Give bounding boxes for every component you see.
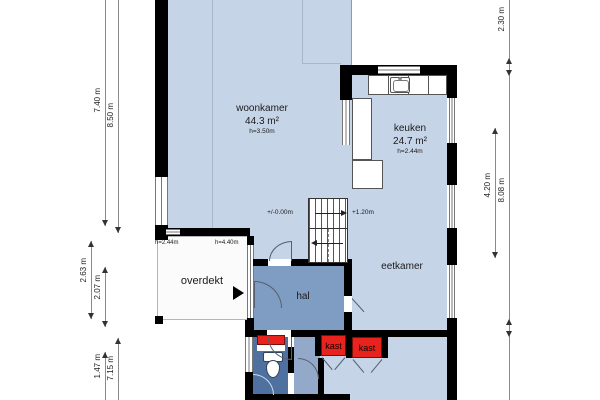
- height-label-left: h=2.44m: [155, 240, 187, 248]
- dimension-arrow: [102, 267, 108, 273]
- kast-right: kast: [352, 337, 382, 358]
- woonkamer-label: woonkamer 44.3 m² h=3.50m: [202, 102, 322, 136]
- wall-eetkamer-bottom: [352, 330, 447, 337]
- window-left: [155, 177, 168, 225]
- dimension-arrow: [88, 313, 94, 319]
- sink-basin: [393, 80, 409, 92]
- wall-right: [447, 65, 457, 98]
- dimension-arrow: [506, 70, 512, 76]
- wall-left: [155, 0, 168, 177]
- dimension-arrow: [506, 58, 512, 64]
- dimension-arrow: [506, 319, 512, 325]
- stair-direction-line: [317, 243, 343, 244]
- dimension-arrow: [492, 128, 498, 134]
- wall-stub: [382, 337, 388, 358]
- dimension-line: [118, 0, 119, 233]
- dimension-label: 8.08 m: [497, 178, 506, 202]
- dimension-label: 2.63 m: [79, 258, 88, 282]
- dimension-line: [91, 241, 92, 319]
- dimension-line: [105, 267, 106, 327]
- dimension-label: 7.15 m: [106, 356, 115, 380]
- facade-edge-line: [351, 0, 352, 65]
- stair-landing-label: +1.20m: [352, 209, 392, 217]
- keuken-label: keuken 24.7 m² h=2.44m: [360, 122, 460, 156]
- dimension-label: 8.50 m: [106, 103, 115, 127]
- hal-label: hal: [273, 290, 333, 303]
- sink-faucet-icon: [398, 77, 402, 80]
- room-name: woonkamer: [202, 102, 322, 115]
- floor-level-label: +/-0.00m: [258, 209, 302, 217]
- window-right: [449, 185, 455, 228]
- dimension-label: 2.07 m: [93, 275, 102, 299]
- dimension-arrow: [102, 321, 108, 327]
- floorplan-canvas[interactable]: kast kast woonkamer 44.3 m² h=3.50m keuk…: [0, 0, 600, 400]
- overdekt-label: overdekt: [162, 274, 242, 288]
- window-overdekt-top: [166, 229, 180, 235]
- stair-direction-line: [315, 213, 341, 214]
- wall-left-bottom: [245, 320, 253, 337]
- stair-center-dashed-line: [328, 229, 329, 262]
- dimension-label: 1.47 m: [93, 354, 102, 378]
- kitchen-lower-unit: [352, 160, 383, 189]
- room-name: keuken: [360, 122, 460, 135]
- dimension-arrow: [492, 252, 498, 258]
- stair-arrow-down-icon: [311, 240, 317, 246]
- dimension-label: 2.30 m: [497, 7, 506, 31]
- window-keuken-top: [378, 66, 420, 74]
- wall-hal-right: [344, 259, 352, 296]
- dimension-arrow: [115, 227, 121, 233]
- room-ceiling-height: h=2.44m: [360, 148, 460, 156]
- dimension-arrow: [88, 241, 94, 247]
- room-area: 44.3 m²: [202, 115, 322, 128]
- dimension-label: 7.40 m: [93, 88, 102, 112]
- window-front-glass: [247, 245, 254, 318]
- wall-hal-top: [253, 259, 268, 266]
- wall-right: [447, 318, 457, 400]
- room-area: 24.7 m²: [360, 135, 460, 148]
- wall-corner: [155, 316, 163, 324]
- ceiling-line: [302, 0, 303, 63]
- dimension-arrow: [102, 220, 108, 226]
- stair-arrow-up-icon: [341, 210, 347, 216]
- window-keuken-left: [342, 100, 350, 145]
- kast-left-label: kast: [325, 341, 342, 351]
- dimension-arrow: [115, 338, 121, 344]
- window-toilet: [245, 337, 253, 372]
- staircase: [308, 198, 348, 263]
- eetkamer-label: eetkamer: [352, 260, 452, 273]
- dimension-line: [118, 338, 119, 400]
- dimension-label: 4.20 m: [483, 173, 492, 197]
- dimension-arrow: [506, 331, 512, 337]
- kast-left: kast: [321, 335, 346, 356]
- height-label-right: h=4.40m: [215, 240, 250, 248]
- kast-right-label: kast: [359, 343, 376, 353]
- ceiling-line: [302, 63, 341, 64]
- dimension-line: [495, 128, 496, 258]
- room-ceiling-height: h=3.50m: [202, 128, 322, 136]
